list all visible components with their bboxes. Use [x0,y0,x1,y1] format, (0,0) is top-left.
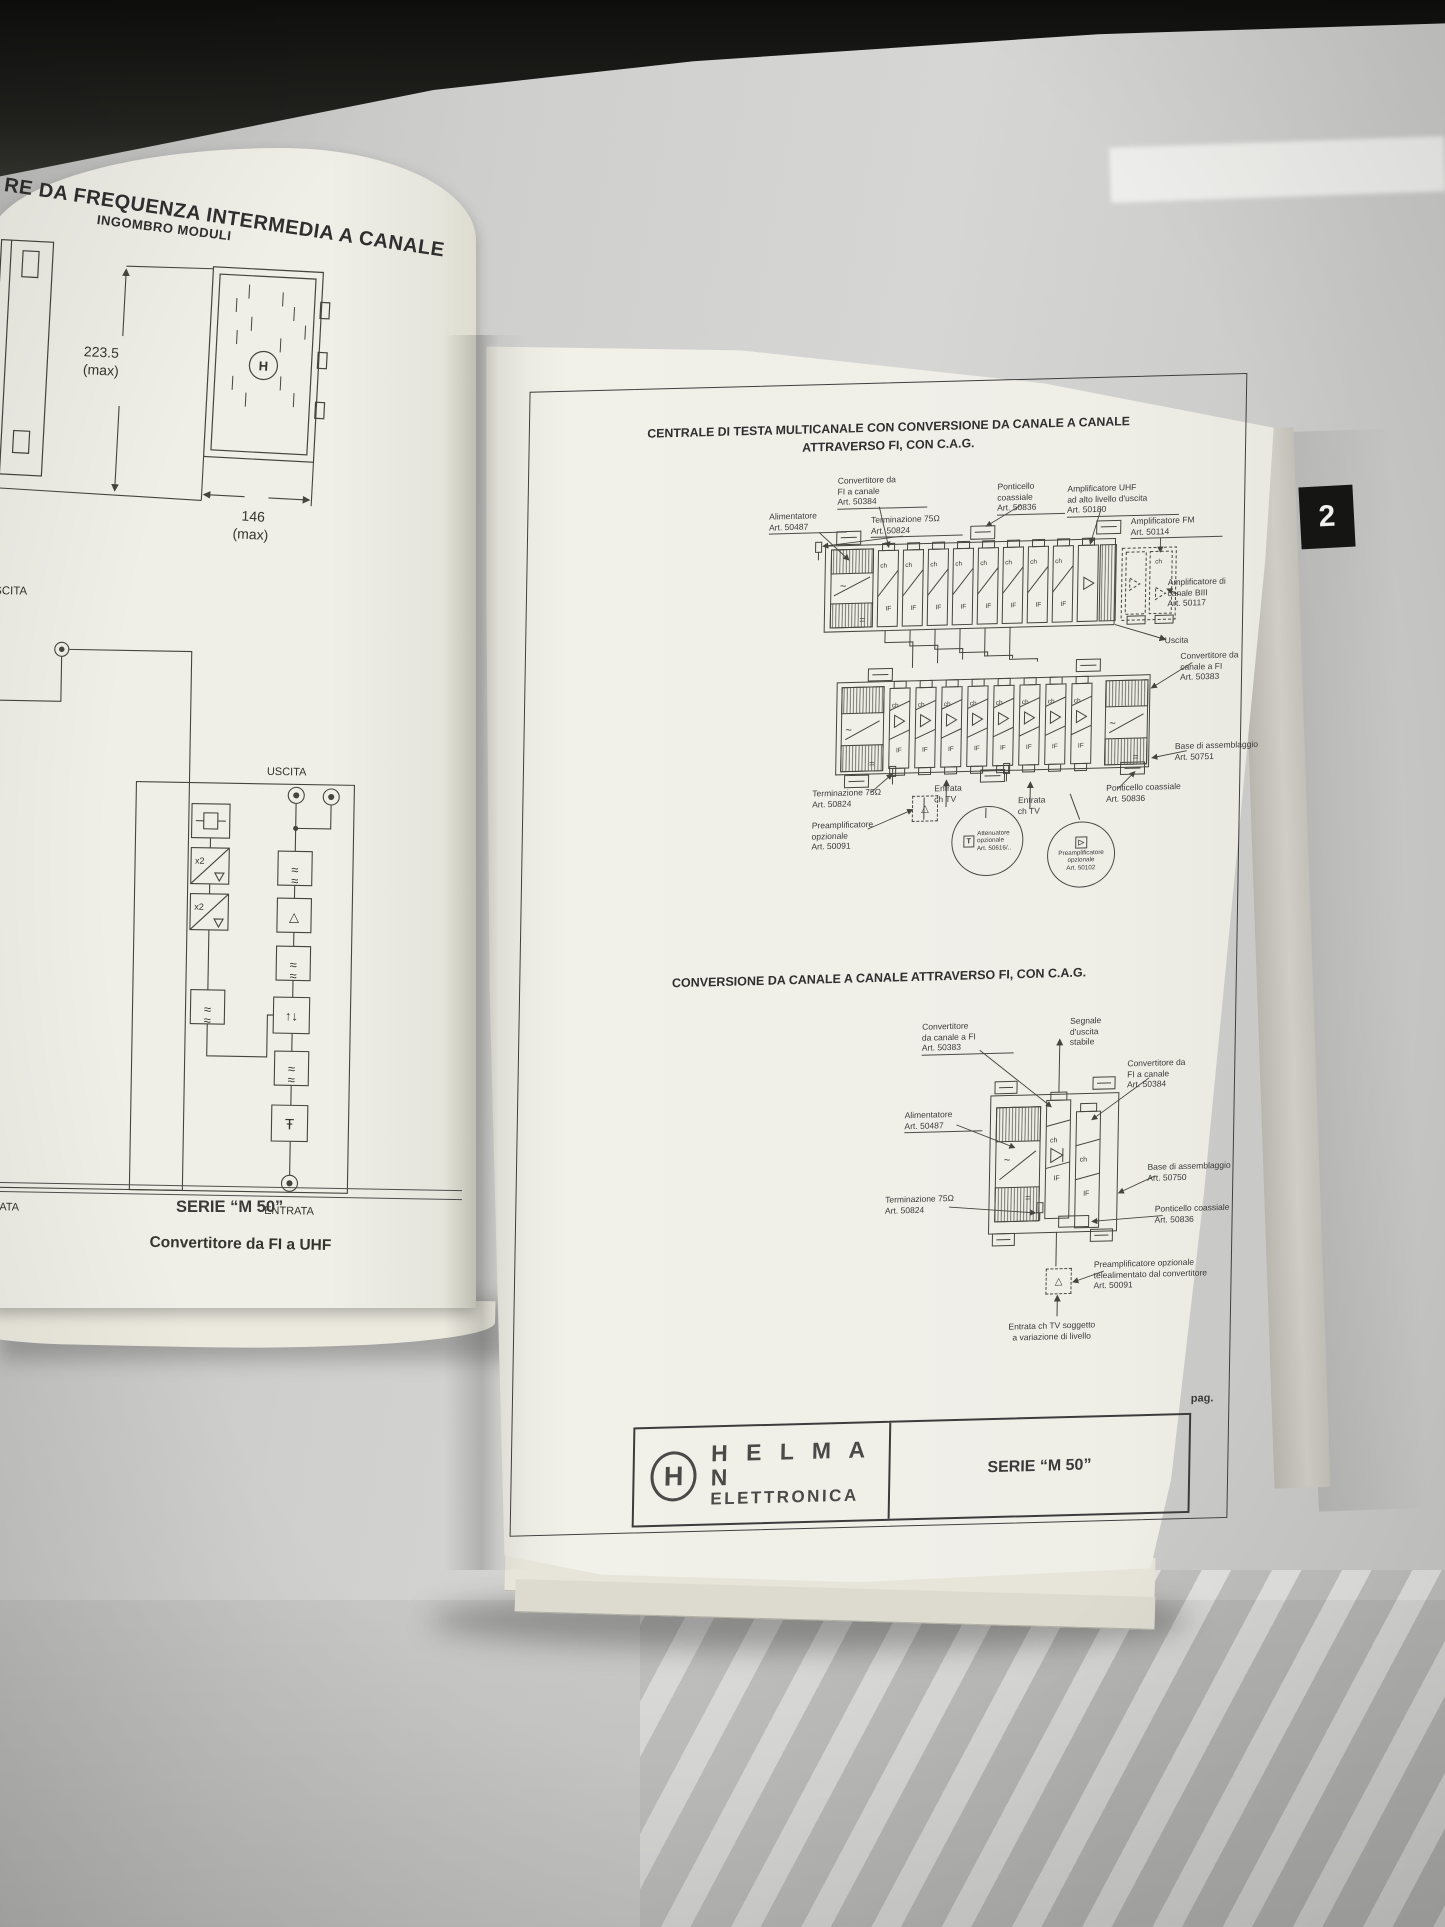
x2-label: x2 [195,856,205,866]
dim-width-max: (max) [232,525,269,543]
height-dimension [0,257,213,500]
label2-ponticello: Ponticello coassiale Art. 50836 [1155,1201,1260,1225]
agc-icon: ↑↓ [285,1008,298,1023]
triangle-up-icon: △ [289,909,299,924]
trap-filter-icon: Ŧ [285,1116,294,1133]
label-base-assemblaggio: Base di assemblaggio Art. 50751 [1175,738,1287,762]
footer-brand-text: H E L M A N ELETTRONICA [710,1437,889,1510]
preamp2-link [1070,794,1080,820]
uhf-converter-chain [129,782,354,1194]
svg-text:ch: ch [980,560,987,567]
entrata-line [1056,1232,1057,1266]
svg-text:IF: IF [1053,1175,1059,1182]
label-uscita: Uscita [1165,634,1215,646]
svg-text:IF: IF [948,746,954,753]
side-module-partial [0,240,54,476]
filter-icon: ≈ [204,1013,211,1028]
tilde-icon: ~ [1004,1154,1011,1166]
ch-amp-if-modules [889,676,1093,775]
psu-module [830,549,873,628]
label2-preamplificatore: Preamplificatore opzionale telealimentat… [1093,1256,1234,1292]
module-h-logo: H [258,358,268,373]
terminator-symbol [815,542,821,560]
label2-base-assemblaggio: Base di assemblaggio Art. 50750 [1147,1159,1259,1183]
label-ponticello: Ponticello coassiale Art. 50836 [997,480,1066,516]
svg-text:ch: ch [970,700,977,707]
equals-icon: = [859,615,865,626]
ch-if-modules [877,539,1073,627]
label-terminazione-2: Terminazione 75Ω Art. 50824 [812,786,907,810]
svg-text:IF: IF [1026,744,1032,751]
optional-preamp-box: △ [1045,1268,1071,1295]
bottom-bridge [1059,1215,1089,1227]
svg-text:ch: ch [918,702,925,709]
svg-text:ch: ch [1074,697,1081,704]
vent-dashes [231,284,307,409]
svg-text:IF: IF [974,745,980,752]
label-convertitore-canale-fi: Convertitore da canale a FI Art. 50383 [1180,648,1276,682]
uscita-arrow [1115,623,1165,640]
svg-text:IF: IF [885,605,891,612]
svg-text:IF: IF [1052,743,1058,750]
svg-text:ch: ch [880,562,887,569]
dim-width-value: 146 [241,508,265,525]
svg-text:ch: ch [1048,698,1055,705]
left-partial-chain [0,641,192,1190]
brand-line2: ELETTRONICA [710,1485,888,1510]
footer-brand-cell: H H E L M A N ELETTRONICA [634,1423,892,1526]
svg-text:IF: IF [1035,601,1041,608]
svg-text:IF: IF [896,747,902,754]
svg-text:IF: IF [1000,744,1006,751]
uhf-amp-module [1077,538,1098,622]
right-page-footer: H H E L M A N ELETTRONICA SERIE “M 50” [632,1413,1192,1528]
label-amplificatore-biii: Amplificatore di canale BIII Art. 50117 [1167,575,1260,609]
label-ponticello-2: Ponticello coassiale Art. 50836 [1106,780,1202,804]
svg-text:IF: IF [1083,1190,1089,1197]
svg-text:IF: IF [922,747,928,754]
label2-terminazione: Terminazione 75Ω Art. 50824 [885,1192,981,1216]
equals-icon: = [1025,1193,1031,1204]
dim-height-max: (max) [83,361,120,379]
svg-text:ch: ch [1030,559,1037,566]
fi-canale-module [1075,1103,1101,1228]
right-page-content: CENTRALE DI TESTA MULTICANALE CON CONVER… [501,348,1268,1584]
helman-logo-letter: H [664,1461,684,1493]
tilde-icon: ~ [845,724,852,736]
module-dimensions-drawing: 223.5 (max) H 14 [0,233,429,636]
triangle-right-icon: ▷ [1075,837,1087,849]
entrata-partial-label: ENTRATA [0,1201,20,1214]
label-entrata-2: Entrata ch TV [1018,794,1066,817]
interconnect-wires [884,627,1038,669]
svg-text:ch: ch [996,700,1003,707]
tilde-icon: ~ [1109,718,1116,730]
segnale-arrow [1059,1040,1060,1092]
filter-icon: ≈ [288,1072,295,1087]
label-amplificatore-uhf: Amplificatore UHF ad alto livello d'usci… [1067,481,1180,518]
svg-text:ch: ch [930,561,937,568]
svg-text:IF: IF [1010,602,1016,609]
label2-convertitore-fi-canale: Convertitore da FI a canale Art. 50384 [1127,1056,1223,1090]
footer-series-cell: SERIE “M 50” [890,1415,1190,1519]
svg-text:ch: ch [905,562,912,569]
svg-text:IF: IF [1078,742,1084,749]
svg-text:ch: ch [1005,559,1012,566]
label-amplificatore-fm: Amplificatore FM Art. 50114 [1131,514,1223,540]
triangle-up-icon: △ [921,803,929,814]
svg-text:ch: ch [1155,558,1162,565]
x2-label: x2 [194,902,204,912]
equals-icon: = [869,759,875,770]
footer-series-label: SERIE “M 50” [987,1456,1091,1477]
equals-icon: = [1133,752,1139,763]
psu-module [995,1107,1041,1222]
label-preamplificatore-1: Preamplificatore opzionale Art. 50091 [811,818,907,852]
svg-text:ch: ch [1050,1137,1058,1144]
attenuator-icon: T [963,836,974,848]
filter-icon: ≈ [291,873,298,888]
svg-text:IF: IF [985,603,991,610]
brand-line1: H E L M A N [711,1437,890,1490]
page-index-tab: 2 [1298,485,1355,550]
label2-convertitore-canale-fi: Convertitore da canale a FI Art. 50383 [922,1019,1015,1055]
svg-text:ch: ch [1022,699,1029,706]
output-module [1099,544,1116,620]
filter-icon: ≈ [289,968,296,983]
svg-text:IF: IF [1060,601,1066,608]
svg-text:IF: IF [960,603,966,610]
svg-text:ch: ch [955,561,962,568]
tab-number: 2 [1318,500,1336,535]
background-wall-highlight [1109,136,1445,203]
canale-fi-module [1045,1092,1071,1219]
dim-height-value: 223.5 [84,343,120,361]
label-attenuatore: Attenuatore opzionale Art. 50616/.. [977,829,1012,853]
svg-text:ch: ch [1080,1156,1088,1163]
triangle-up-icon: △ [1055,1276,1063,1287]
svg-text:ch: ch [1055,558,1062,565]
page-number-label: pag. [1133,1392,1213,1406]
label-entrata-1: Entrata ch TV [934,782,982,805]
svg-text:IF: IF [935,604,941,611]
label2-entrata: Entrata ch TV soggetto a variazione di l… [967,1318,1137,1344]
width-dimension [201,456,313,506]
left-page: RE DA FREQUENZA INTERMEDIA A CANALE INGO… [0,148,476,1308]
uscita-partial-label: USCITA [0,585,28,598]
module-texts: ~ = chIF chIF chIF chIF chIF chIF chIF c… [829,555,1162,1209]
photo-of-open-catalog: { "left_page": { "title_partial": "RE DA… [0,0,1445,1927]
label-convertitore-fi-canale: Convertitore da FI a canale Art. 50384 [837,473,928,509]
helman-logo: H [650,1451,697,1502]
left-series-label: SERIE “M 50” [176,1198,283,1217]
rack1 [813,519,1176,671]
tilde-icon: ~ [840,581,847,593]
label-preamplificatore-2: Preamplificatore opzionale Art. 50102 [1058,849,1104,873]
svg-text:ch: ch [944,701,951,708]
width-dimension-text: 146 (max) [232,507,270,543]
label-terminazione: Terminazione 75Ω Art. 50824 [871,513,963,539]
label-alimentatore: Alimentatore Art. 50487 [769,510,847,535]
height-dimension-text: 223.5 (max) [83,343,121,379]
svg-text:ch: ch [892,702,899,709]
svg-text:IF: IF [910,605,916,612]
uscita-label: USCITA [267,766,307,779]
label2-alimentatore: Alimentatore Art. 50487 [904,1108,982,1133]
label2-segnale-uscita: Segnale d'uscita stabile [1070,1014,1131,1047]
diagram-caption: Convertitore da FI a UHF [149,1234,331,1254]
optional-preamp-box: △ [912,795,938,822]
